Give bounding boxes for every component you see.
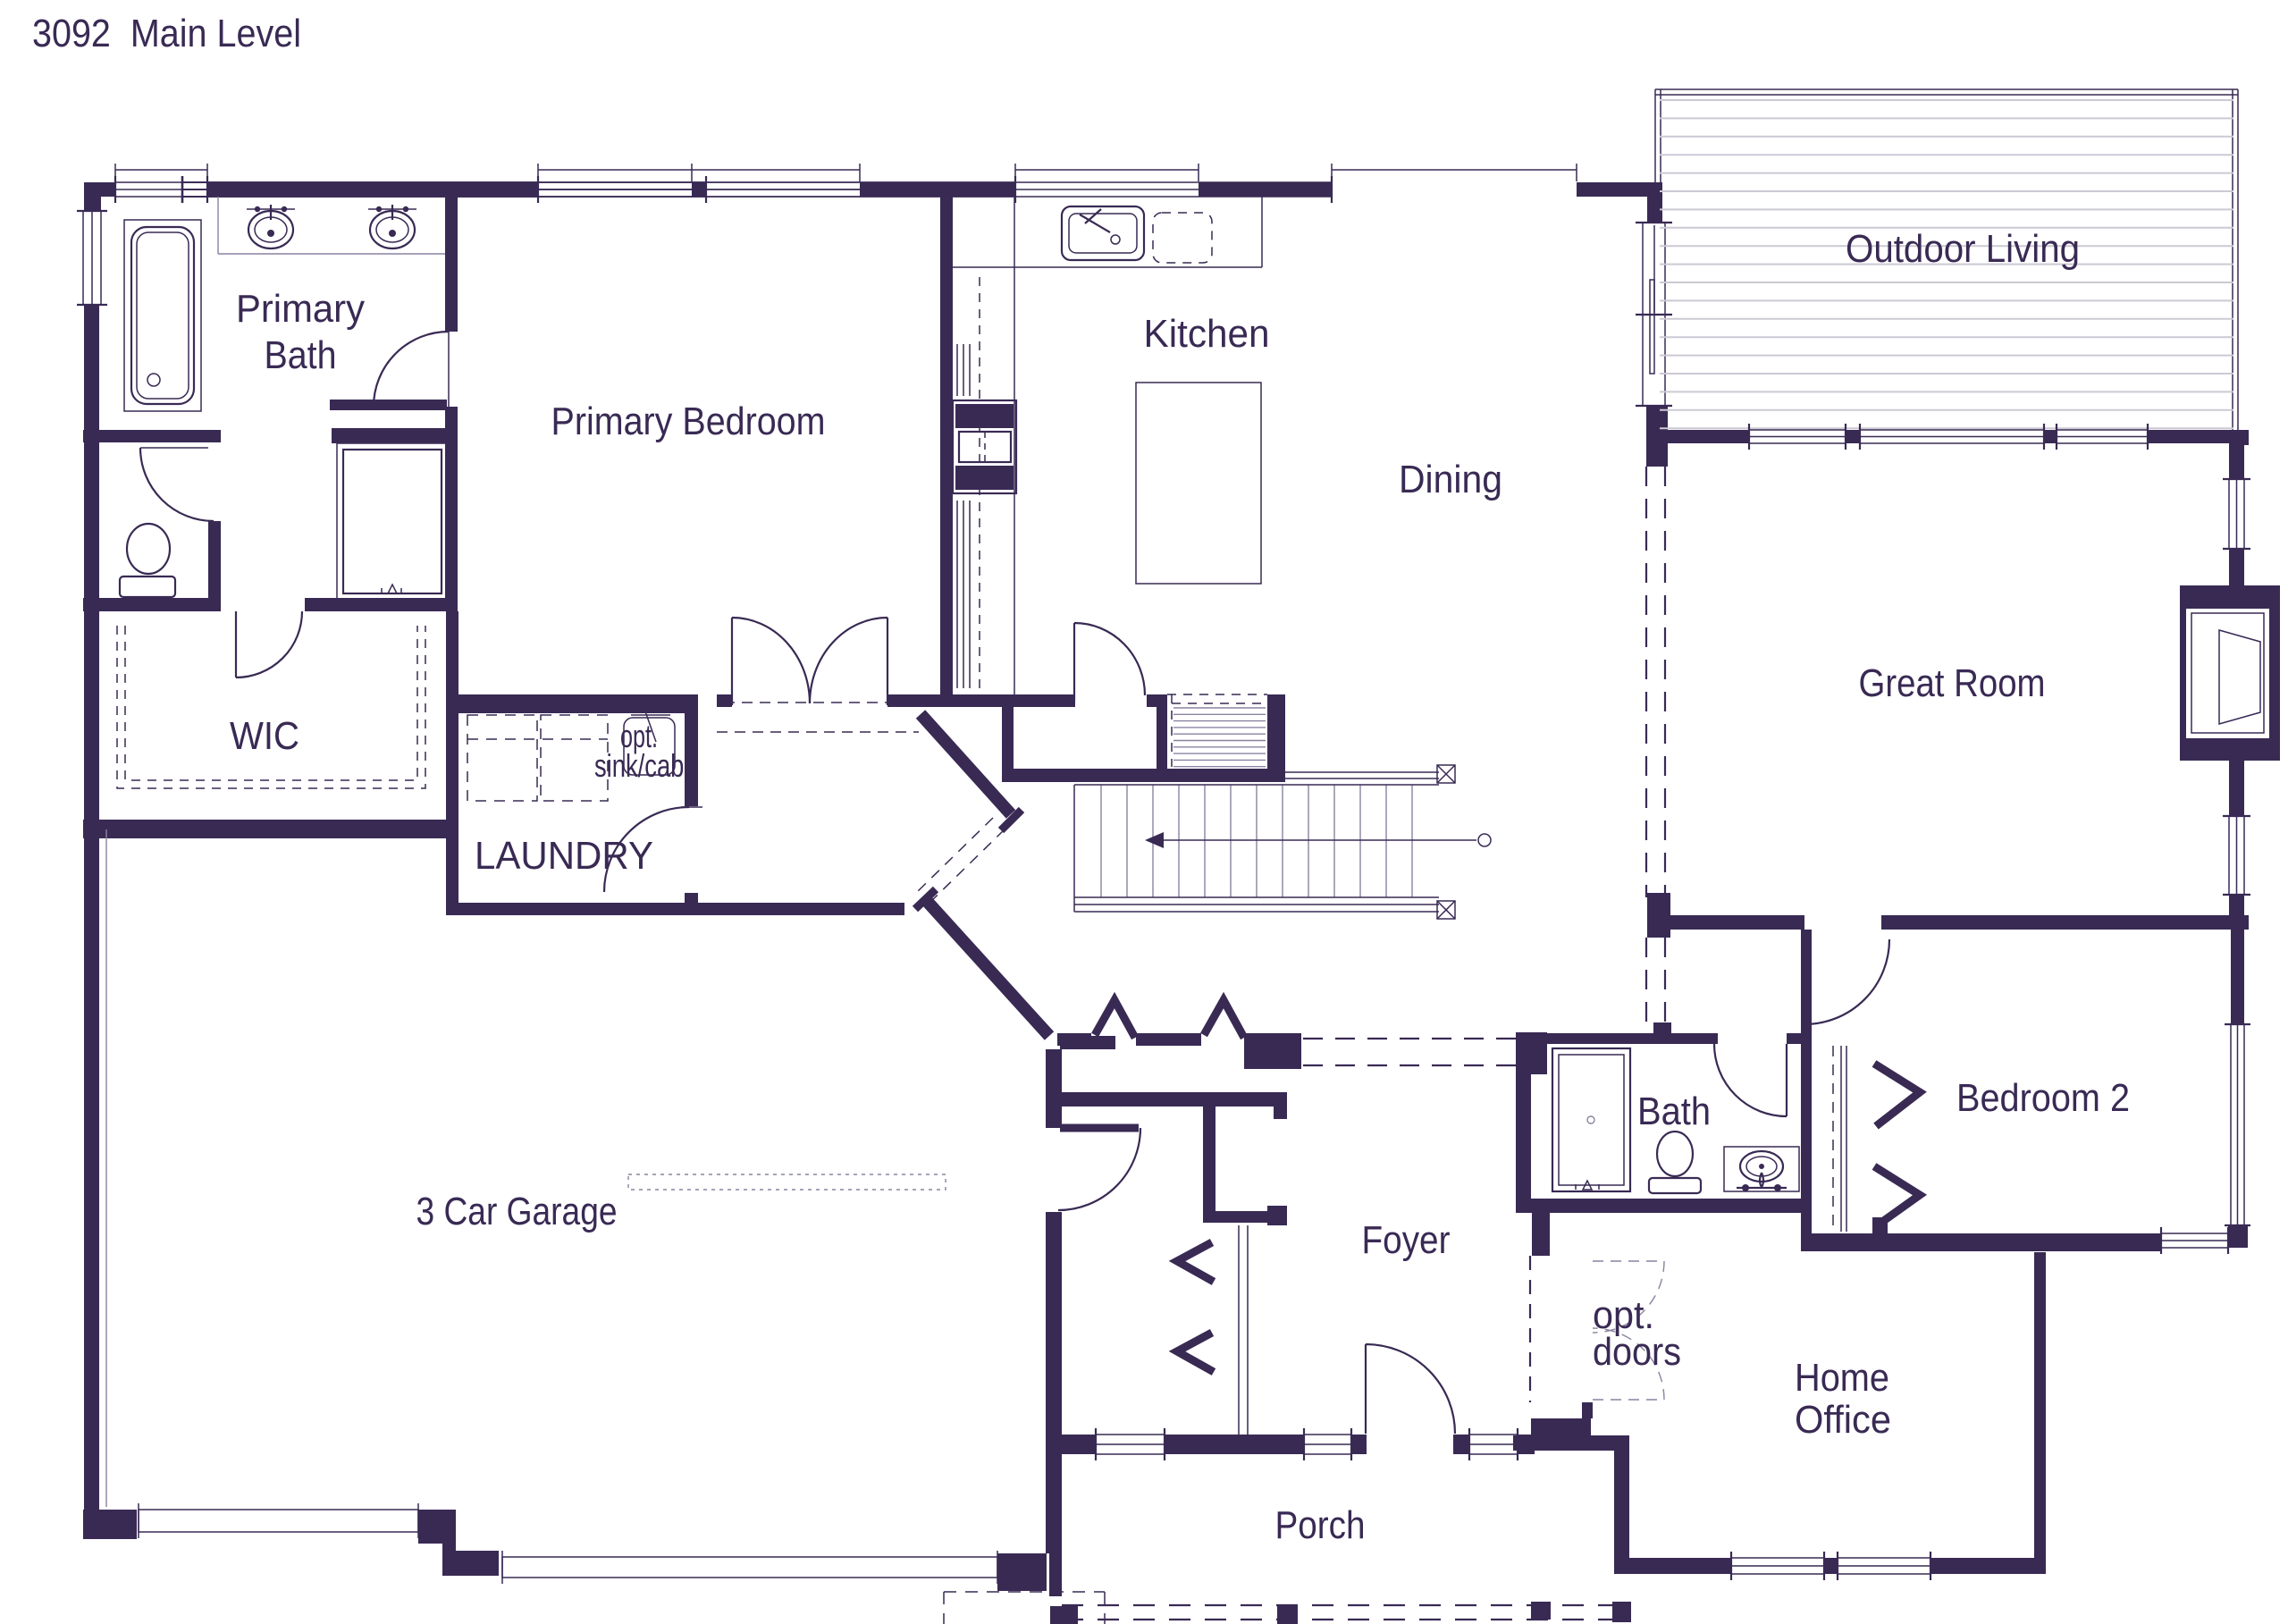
svg-text:Home: Home [1795, 1356, 1889, 1400]
svg-text:Office: Office [1795, 1398, 1891, 1442]
svg-text:Primary Bedroom: Primary Bedroom [551, 400, 826, 443]
svg-text:WIC: WIC [230, 714, 299, 758]
svg-text:3092 Main Level: 3092 Main Level [32, 12, 301, 55]
svg-text:Bedroom 2: Bedroom 2 [1956, 1076, 2130, 1120]
svg-text:Dining: Dining [1399, 458, 1502, 501]
svg-text:3 Car Garage: 3 Car Garage [416, 1190, 618, 1233]
svg-text:Great Room: Great Room [1859, 661, 2046, 705]
svg-text:Bath: Bath [265, 333, 337, 377]
svg-text:Bath: Bath [1637, 1090, 1711, 1133]
svg-text:sink/cab.: sink/cab. [594, 747, 691, 784]
svg-text:Foyer: Foyer [1362, 1218, 1451, 1262]
svg-text:Primary: Primary [236, 287, 365, 331]
svg-text:Outdoor Living: Outdoor Living [1846, 227, 2080, 271]
svg-text:Kitchen: Kitchen [1144, 312, 1270, 356]
svg-text:doors: doors [1593, 1330, 1681, 1374]
svg-text:Porch: Porch [1275, 1503, 1366, 1547]
svg-text:LAUNDRY: LAUNDRY [475, 834, 653, 878]
